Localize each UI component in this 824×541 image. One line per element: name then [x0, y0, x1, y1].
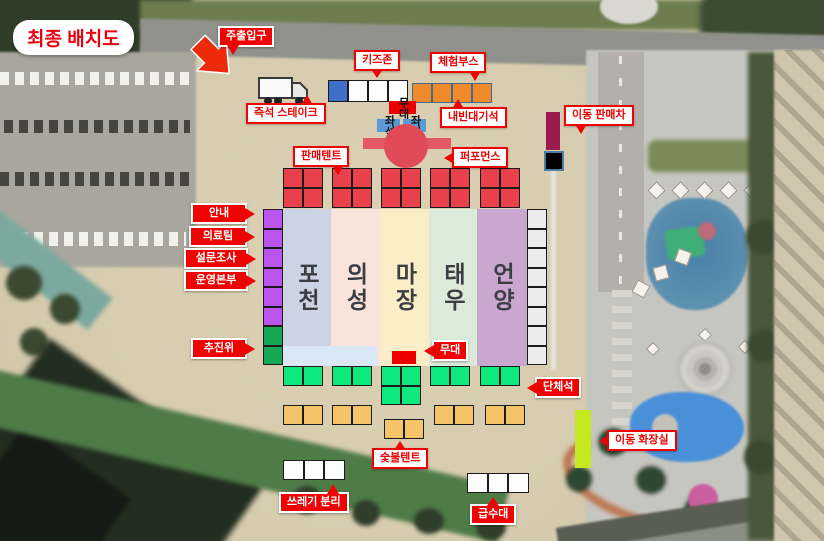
- label-stage: 무대: [432, 340, 468, 361]
- committee-square: [263, 326, 283, 346]
- tree: [566, 466, 592, 492]
- charcoal-square: [485, 405, 505, 425]
- kids-zone-square: [348, 80, 368, 102]
- label-charcoal-tent: 숯불텐트: [372, 448, 428, 469]
- parked-cars-row: [0, 72, 190, 85]
- tent-square: [303, 188, 323, 208]
- label-sales-tent: 판매텐트: [293, 146, 349, 167]
- charcoal-square: [454, 405, 474, 425]
- mobile-toilet-rect: [575, 410, 591, 468]
- label-information: 안내: [191, 203, 247, 224]
- seat-square: [480, 366, 500, 386]
- booth-square: [527, 268, 547, 288]
- tent-square: [480, 188, 500, 208]
- charcoal-tent-pair: [283, 405, 323, 425]
- tent-square: [450, 188, 470, 208]
- region-column-eonyang: 언양: [477, 209, 527, 366]
- tree: [744, 440, 778, 474]
- main-stage-rect: [392, 351, 416, 364]
- seat-square: [430, 366, 450, 386]
- label-committee: 추진위: [191, 338, 247, 359]
- tent-square: [283, 168, 303, 188]
- water-station-row: [467, 473, 529, 493]
- building-shadow-stripes: [774, 50, 824, 541]
- charcoal-square: [404, 419, 424, 439]
- tree: [636, 466, 666, 494]
- seat-square: [401, 366, 421, 386]
- label-operation-hq: 운영본부: [184, 270, 248, 291]
- sales-tent-block: [430, 168, 470, 208]
- service-square: [263, 209, 283, 229]
- label-group-seating: 단체석: [535, 377, 581, 398]
- stepping-stones: [612, 290, 632, 450]
- pool-ball: [698, 222, 716, 240]
- label-water-station: 급수대: [470, 504, 516, 525]
- charcoal-square: [505, 405, 525, 425]
- region-column-uiseong: 의성: [331, 209, 380, 366]
- ceremony-stage-box: 무대: [389, 101, 416, 114]
- group-seating-pair: [480, 366, 520, 386]
- sales-tent-block: [381, 168, 421, 208]
- charcoal-square: [352, 405, 372, 425]
- service-column-left: [263, 209, 283, 365]
- seat-square: [381, 386, 401, 406]
- seat-square: [303, 366, 323, 386]
- experience-booth-square: [432, 83, 452, 103]
- tent-square: [381, 168, 401, 188]
- label-guest-seating: 내빈대기석: [440, 107, 507, 128]
- charcoal-square: [384, 419, 404, 439]
- booth-square: [527, 326, 547, 346]
- booth-square: [527, 346, 547, 366]
- water-square: [508, 473, 529, 493]
- trash-square: [324, 460, 345, 480]
- label-medical-team: 의료팀: [189, 226, 247, 247]
- label-survey: 설문조사: [184, 248, 248, 269]
- service-square: [263, 229, 283, 249]
- performance-circle: [384, 124, 428, 168]
- tree: [414, 508, 444, 534]
- region-name: 언양: [485, 262, 519, 314]
- group-seating-pair: [283, 366, 323, 386]
- tent-square: [381, 188, 401, 208]
- charcoal-square: [283, 405, 303, 425]
- kids-zone-blue-square: [328, 80, 348, 102]
- tent-square: [480, 168, 500, 188]
- parked-cars-row: [4, 120, 190, 133]
- curb-line: [551, 155, 556, 370]
- region-name: 포천: [290, 262, 324, 314]
- experience-booth-square: [412, 83, 432, 103]
- booth-square: [527, 287, 547, 307]
- booth-square: [527, 307, 547, 327]
- tent-square: [283, 188, 303, 208]
- charcoal-square: [303, 405, 323, 425]
- region-name: 태우: [436, 262, 470, 314]
- tree: [50, 294, 80, 324]
- charcoal-square: [332, 405, 352, 425]
- tree: [6, 266, 42, 300]
- group-seating-pair: [430, 366, 470, 386]
- water-square: [488, 473, 509, 493]
- mobile-cart-black: [544, 151, 564, 171]
- charcoal-tent-pair: [434, 405, 474, 425]
- fountain-circle: [676, 340, 734, 398]
- mobile-cart-maroon: [546, 112, 560, 150]
- label-experience-booth: 체험부스: [430, 52, 486, 73]
- tent-square: [500, 188, 520, 208]
- tent-square: [332, 188, 352, 208]
- tent-square: [430, 188, 450, 208]
- service-square: [263, 287, 283, 307]
- right-booth-column: [527, 209, 547, 365]
- charcoal-square: [434, 405, 454, 425]
- tent-square: [401, 168, 421, 188]
- sales-tent-block: [480, 168, 520, 208]
- tent-square: [500, 168, 520, 188]
- water-square: [467, 473, 488, 493]
- seat-square: [401, 386, 421, 406]
- label-kids-zone: 키즈존: [354, 50, 400, 71]
- service-square: [263, 268, 283, 288]
- label-trash-separation: 쓰레기 분리: [279, 492, 349, 513]
- kids-zone-square: [388, 80, 408, 102]
- service-square: [263, 248, 283, 268]
- seat-square: [381, 366, 401, 386]
- tent-square: [352, 188, 372, 208]
- service-square: [263, 307, 283, 327]
- label-performance: 퍼포먼스: [452, 147, 508, 168]
- trash-square: [283, 460, 304, 480]
- kids-zone-row: [328, 80, 408, 102]
- seat-square: [500, 366, 520, 386]
- tent-square: [303, 168, 323, 188]
- seat-square: [352, 366, 372, 386]
- parked-cars-row: [0, 172, 190, 186]
- committee-square: [263, 346, 283, 366]
- sales-tent-block: [283, 168, 323, 208]
- booth-square: [527, 209, 547, 229]
- region-column-pocheon: 포천: [283, 209, 331, 366]
- blue-strip: [283, 346, 377, 366]
- group-seating-pair: [332, 366, 372, 386]
- page-title: 최종 배치도: [13, 20, 134, 55]
- charcoal-tent-pair: [485, 405, 525, 425]
- seat-square: [283, 366, 303, 386]
- trash-square: [304, 460, 325, 480]
- booth-square: [527, 229, 547, 249]
- seat-square: [450, 366, 470, 386]
- region-name: 마장: [388, 262, 422, 314]
- charcoal-tent-pair: [384, 419, 424, 439]
- tent-square: [352, 168, 372, 188]
- site-layout-map: 무대 좌석 좌석 포천 의성 마장 태우: [0, 0, 824, 541]
- region-column-majang: 마장: [380, 209, 429, 366]
- group-seating-block: [381, 366, 421, 405]
- region-name: 의성: [339, 262, 373, 314]
- label-instant-steak: 즉석 스테이크: [246, 103, 326, 124]
- tent-square: [401, 188, 421, 208]
- tent-square: [430, 168, 450, 188]
- experience-booth-square: [472, 83, 492, 103]
- kids-zone-square: [368, 80, 388, 102]
- label-main-entrance: 주출입구: [218, 26, 274, 47]
- seat-square: [332, 366, 352, 386]
- label-mobile-food-truck: 이동 판매차: [564, 105, 634, 126]
- label-mobile-toilet: 이동 화장실: [607, 430, 677, 451]
- booth-square: [527, 248, 547, 268]
- tree: [352, 500, 380, 526]
- trash-separation-row: [283, 460, 345, 480]
- charcoal-tent-pair: [332, 405, 372, 425]
- lane-dashes: [619, 56, 622, 286]
- tent-square: [450, 168, 470, 188]
